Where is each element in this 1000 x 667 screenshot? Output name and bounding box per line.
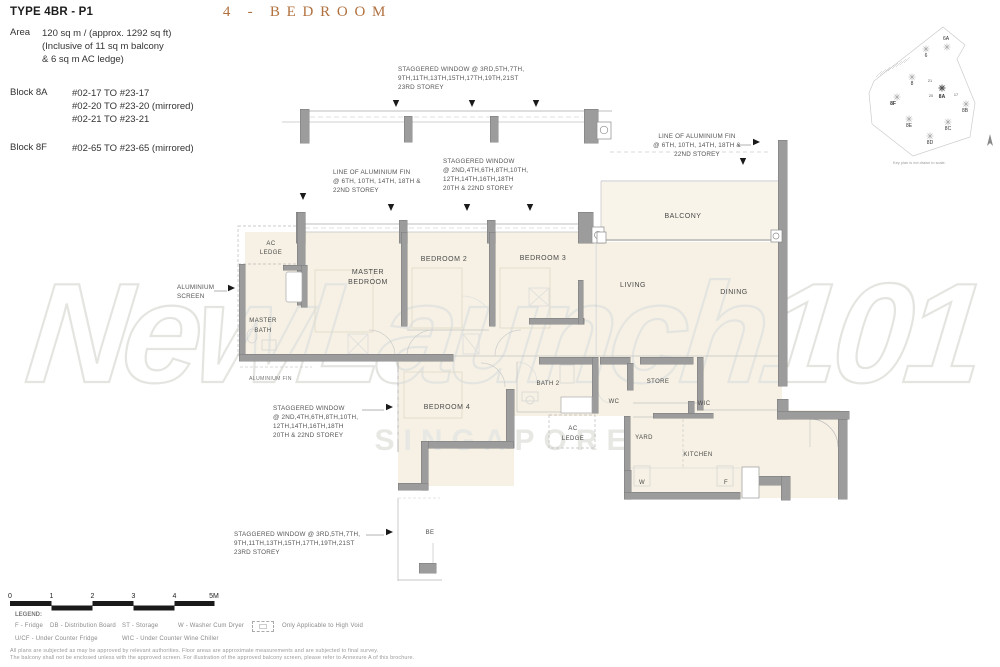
annotation-staggered-bed4: STAGGERED WINDOW [273, 405, 345, 412]
room-label-ac-ledge-top: AC [266, 241, 275, 247]
keyplan-block-8b: 8B [962, 108, 969, 114]
svg-text:4: 4 [173, 593, 177, 600]
block-8f-units-1: #02-65 TO #23-65 (mirrored) [72, 142, 194, 155]
svg-text:@ 6TH, 10TH, 14TH, 18TH &: @ 6TH, 10TH, 14TH, 18TH & [333, 178, 421, 185]
legend-item-storage: ST - Storage [122, 623, 158, 629]
page-title: TYPE 4BR - P1 [10, 6, 93, 18]
svg-text:@ 2ND,4TH,6TH,8TH,10TH,: @ 2ND,4TH,6TH,8TH,10TH, [273, 414, 358, 421]
scale-tick-5m: 5M [209, 593, 219, 600]
room-label-yard: YARD [635, 435, 653, 441]
legend-title: LEGEND: [15, 612, 42, 618]
svg-text:@ 2ND,4TH,6TH,8TH,10TH,: @ 2ND,4TH,6TH,8TH,10TH, [443, 167, 528, 174]
block-8a-units-3: #02-21 TO #23-21 [72, 113, 149, 126]
svg-text:22ND STOREY: 22ND STOREY [674, 151, 720, 158]
floorplan-page: NewLaunch101 SINGAPORE [0, 0, 1000, 667]
room-label-bedroom3: BEDROOM 3 [520, 255, 567, 262]
room-label-store: STORE [647, 379, 670, 385]
svg-text:1: 1 [50, 593, 54, 600]
svg-text:@ 6TH, 10TH, 14TH, 18TH &: @ 6TH, 10TH, 14TH, 18TH & [653, 142, 741, 149]
watermark-subtitle: SINGAPORE [374, 424, 635, 457]
room-label-bedroom2: BEDROOM 2 [421, 256, 468, 263]
room-label-below-unit: BE [426, 530, 435, 536]
keyplan-block-8f: 8F [890, 101, 896, 107]
room-label-master-bath2: BATH [254, 328, 271, 334]
block-8a-units-1: #02-17 TO #23-17 [72, 87, 149, 100]
keyplan-unit-17: 17 [954, 93, 958, 97]
room-label-kitchen: KITCHEN [683, 452, 712, 458]
room-label-fridge: F [724, 480, 728, 486]
annotation-alum-screen: ALUMINIUM [177, 284, 214, 291]
area-label: Area [10, 27, 30, 38]
block-8a-label: Block 8A [10, 87, 48, 98]
legend-item-db: DB - Distribution Board [50, 623, 116, 629]
room-label-living: LIVING [620, 282, 646, 289]
svg-text:9TH,11TH,13TH,15TH,17TH,19TH,2: 9TH,11TH,13TH,15TH,17TH,19TH,21ST [398, 75, 519, 82]
room-label-bath2: BATH 2 [537, 381, 560, 387]
annotation-fin-left: LINE OF ALUMINIUM FIN [333, 169, 411, 176]
keyplan-block-6a: 6A [943, 36, 950, 42]
room-label-master-bath: MASTER [249, 318, 277, 324]
annotation-alum-fin: ALUMINIUM FIN [249, 376, 292, 382]
high-void-icon [252, 621, 274, 632]
area-value-2: (Inclusive of 11 sq m balcony [42, 40, 164, 53]
room-label-master-bedroom: MASTER [352, 269, 384, 276]
annotation-staggered-mid: STAGGERED WINDOW [443, 158, 515, 165]
room-label-ac-ledge-bottom: AC [568, 426, 577, 432]
room-label-bedroom4: BEDROOM 4 [424, 404, 471, 411]
block-8f-label: Block 8F [10, 142, 47, 153]
area-value-1: 120 sq m / (approx. 1292 sq ft) [42, 27, 171, 40]
room-label-wc: WC [609, 399, 620, 405]
room-label-master-bedroom2: BEDROOM [348, 279, 388, 286]
watermark-brand: NewLaunch101 [20, 254, 986, 413]
keyplan-unit-20: 20 [929, 94, 933, 98]
svg-text:23RD STOREY: 23RD STOREY [398, 84, 444, 91]
legend-item-highvoid: Only Applicable to High Void [282, 623, 363, 629]
block-8a-units-2: #02-20 TO #23-20 (mirrored) [72, 100, 194, 113]
scale-bar: 0 1 2 3 4 5M [8, 593, 219, 611]
annotation-fin-right: LINE OF ALUMINIUM FIN [658, 133, 736, 140]
legend-item-ucf: U/CF - Under Counter Fridge [15, 636, 98, 642]
keyplan-block-8c: 8C [945, 126, 952, 132]
svg-text:20TH & 22ND STOREY: 20TH & 22ND STOREY [273, 432, 344, 439]
svg-text:22ND STOREY: 22ND STOREY [333, 187, 379, 194]
svg-text:12TH,14TH,16TH,18TH: 12TH,14TH,16TH,18TH [443, 176, 514, 183]
svg-text:12TH,14TH,16TH,18TH: 12TH,14TH,16TH,18TH [273, 423, 344, 430]
scale-tick-0: 0 [8, 593, 12, 600]
keyplan: 6A 6 8 8F 8A 8B 8E 8C 8D 21 20 17 Key pl… [869, 27, 993, 165]
svg-text:2: 2 [91, 593, 95, 600]
annotation-staggered-bottom: STAGGERED WINDOW @ 3RD,5TH,7TH, [234, 531, 360, 538]
page-heading: 4 - BEDROOM [200, 4, 415, 21]
legend-item-fridge: F - Fridge [15, 623, 43, 629]
disclaimer-line-2: The balcony shall not be enclosed unless… [10, 655, 414, 661]
room-label-washer: W [639, 480, 645, 486]
keyplan-unit-21: 21 [928, 79, 932, 83]
room-label-ac-ledge-bottom2: LEDGE [562, 436, 584, 442]
keyplan-block-8: 8 [911, 81, 914, 87]
keyplan-block-6: 6 [925, 53, 928, 59]
svg-text:SCREEN: SCREEN [177, 293, 205, 300]
area-value-3: & 6 sq m AC ledge) [42, 53, 124, 66]
legend-item-wic: WIC - Under Counter Wine Chiller [122, 636, 219, 642]
keyplan-block-8a: 8A [939, 94, 946, 100]
keyplan-block-8a-mark [939, 85, 946, 92]
svg-text:20TH & 22ND STOREY: 20TH & 22ND STOREY [443, 185, 514, 192]
room-label-ac-ledge-top2: LEDGE [260, 250, 282, 256]
room-label-wic: WIC [698, 401, 711, 407]
svg-text:3: 3 [132, 593, 136, 600]
disclaimer-line-1: All plans are subjected as may be approv… [10, 648, 378, 654]
keyplan-block-8d: 8D [927, 140, 934, 146]
svg-text:23RD STOREY: 23RD STOREY [234, 549, 280, 556]
keyplan-caption: Key plan is not drawn to scale. [893, 160, 946, 165]
keyplan-block-8e: 8E [906, 123, 913, 129]
svg-text:9TH,11TH,13TH,15TH,17TH,19TH,2: 9TH,11TH,13TH,15TH,17TH,19TH,21ST [234, 540, 355, 547]
annotation-staggered-top: STAGGERED WINDOW @ 3RD,5TH,7TH, [398, 66, 524, 73]
room-label-dining: DINING [720, 289, 748, 296]
room-label-balcony: BALCONY [665, 213, 702, 220]
north-arrow-icon [987, 134, 993, 146]
legend-item-washer: W - Washer Cum Dryer [178, 623, 244, 629]
